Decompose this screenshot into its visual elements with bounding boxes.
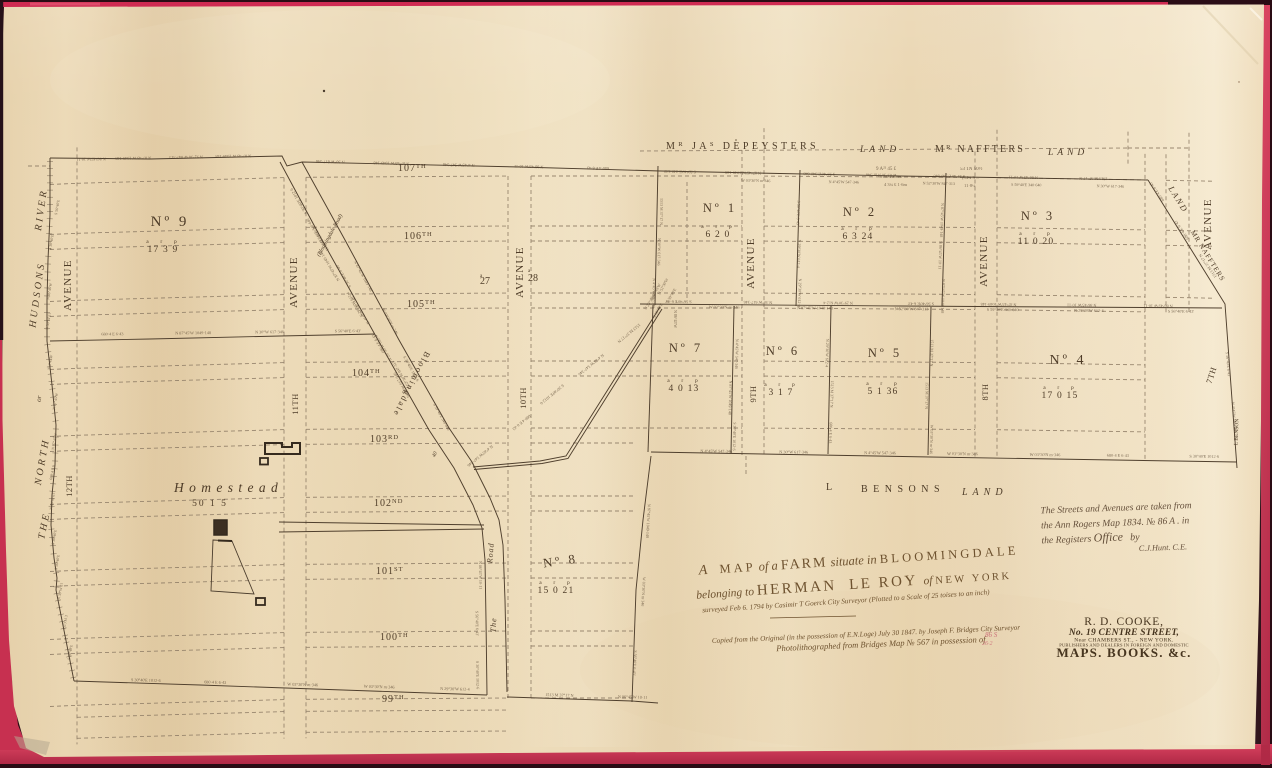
svg-text:S 30°40'E 1012·6: S 30°40'E 1012·6 — [131, 677, 161, 683]
svg-text:Road: Road — [485, 542, 496, 564]
svg-text:9 A²² 45 £: 9 A²² 45 £ — [876, 166, 897, 172]
svg-text:R. D. COOKE,: R. D. COOKE, — [1084, 616, 1164, 628]
svg-text:Nº 6: Nº 6 — [766, 344, 800, 358]
svg-text:N 87°45'W 1049·148: N 87°45'W 1049·148 — [725, 170, 761, 176]
svg-text:N 29°30'W 612·4: N 29°30'W 612·4 — [1074, 308, 1105, 313]
svg-text:LAND: LAND — [1047, 148, 1088, 158]
svg-text:N 30°W 617·346: N 30°W 617·346 — [779, 449, 808, 454]
svg-text:W 03°30'N m·346: W 03°30'N m·346 — [947, 451, 978, 456]
svg-text:(94¼ 3 ...: (94¼ 3 ... — [962, 175, 979, 180]
svg-text:1513 M 37°17 N: 1513 M 37°17 N — [929, 339, 935, 366]
svg-text:6 2 0: 6 2 0 — [706, 230, 731, 240]
svg-text:680·4 E 6·43: 680·4 E 6·43 — [101, 331, 123, 336]
svg-text:MR JAS DEPEYSTERS: MR JAS DEPEYSTERS — [666, 141, 819, 152]
svg-text:W 03°30'N m·346: W 03°30'N m·346 — [287, 682, 318, 688]
svg-text:86 S: 86 S — [985, 631, 998, 639]
svg-text:28: 28 — [528, 273, 538, 284]
svg-text:S 56°40'E 6·43': S 56°40'E 6·43' — [335, 328, 362, 333]
svg-text:L: L — [826, 482, 834, 493]
svg-text:6 3 24: 6 3 24 — [843, 232, 874, 242]
svg-text:BENSONS: BENSONS — [861, 484, 945, 495]
svg-text:26·2: 26·2 — [982, 641, 993, 647]
svg-text:N 4°45'W 547·346: N 4°45'W 547·346 — [829, 179, 859, 184]
svg-text:S 30°40'E 1012·6: S 30°40'E 1012·6 — [475, 661, 480, 689]
svg-text:N 4°45'W 547·346: N 4°45'W 547·346 — [651, 278, 657, 308]
svg-text:N 4°45'W 547·346: N 4°45'W 547·346 — [864, 450, 896, 455]
svg-text:Nº 4: Nº 4 — [1050, 353, 1087, 368]
svg-text:17 0 15: 17 0 15 — [1042, 391, 1079, 401]
svg-text:Nº 2: Nº 2 — [843, 205, 877, 219]
svg-text:Nº 5: Nº 5 — [868, 346, 902, 360]
svg-text:AVENUE: AVENUE — [978, 235, 990, 287]
svg-text:680·4 E 6·43: 680·4 E 6·43 — [828, 422, 834, 443]
svg-text:N 52°30'W 847·313: N 52°30'W 847·313 — [169, 155, 203, 161]
svg-text:17 3 9: 17 3 9 — [148, 245, 179, 255]
svg-text:W 03°30'N m·346: W 03°30'N m·346 — [741, 178, 770, 183]
svg-text:N 86°45'W 10·11: N 86°45'W 10·11 — [76, 157, 106, 163]
svg-text:No. 19 CENTRE STREET,: No. 19 CENTRE STREET, — [1068, 628, 1179, 638]
svg-text:Nº 1: Nº 1 — [703, 201, 737, 215]
svg-text:N 30°W 617·346: N 30°W 617·346 — [1097, 183, 1125, 188]
svg-text:N 87°45'W 1049·148: N 87°45'W 1049·148 — [215, 154, 251, 160]
svg-text:N 86°45'W 10·11: N 86°45'W 10·11 — [514, 164, 544, 170]
svg-text:S 59°40'E 340·640: S 59°40'E 340·640 — [933, 174, 965, 180]
svg-text:4 3¼ £ 1·6m: 4 3¼ £ 1·6m — [884, 182, 907, 187]
svg-text:680·4 E 6·43: 680·4 E 6·43 — [587, 166, 609, 172]
svg-text:S 56°40'E 6·43': S 56°40'E 6·43' — [1168, 309, 1195, 314]
svg-text:N 86°45'W 10·11: N 86°45'W 10·11 — [1009, 175, 1039, 181]
svg-text:S 59°40'E 340·640: S 59°40'E 340·640 — [803, 171, 835, 177]
svg-text:S 56°40'E 6·43': S 56°40'E 6·43' — [796, 200, 802, 225]
svg-text:S 56°40'E 6·43': S 56°40'E 6·43' — [475, 611, 480, 636]
svg-text:N 4°45'W 547·346: N 4°45'W 547·346 — [700, 448, 732, 453]
svg-text:LAND: LAND — [859, 145, 900, 155]
svg-text:4 0 13: 4 0 13 — [669, 384, 700, 394]
svg-text:680·4 E 6·43: 680·4 E 6·43 — [1107, 453, 1129, 458]
svg-text:15 0 21: 15 0 21 — [538, 586, 575, 596]
svg-text:1513 M 37°17 N: 1513 M 37°17 N — [829, 380, 835, 407]
svg-text:11·8¼: 11·8¼ — [964, 183, 976, 188]
svg-text:8TH: 8TH — [980, 383, 990, 400]
svg-text:N 29°30'W 612·4: N 29°30'W 612·4 — [797, 278, 803, 306]
svg-text:9TH: 9TH — [748, 385, 758, 402]
svg-text:N 30°W 617·346: N 30°W 617·346 — [744, 300, 773, 305]
svg-text:N 29°30'W 612·4: N 29°30'W 612·4 — [796, 239, 802, 267]
svg-text:3 1 7: 3 1 7 — [769, 388, 794, 398]
svg-text:LAND: LAND — [961, 487, 1008, 498]
svg-text:W 03°30'N m·346: W 03°30'N m·346 — [364, 684, 395, 690]
svg-text:50 1 5: 50 1 5 — [192, 499, 228, 509]
svg-text:N 86°45'W 10·11: N 86°45'W 10·11 — [478, 561, 483, 589]
svg-text:S 59°40'E 340·640: S 59°40'E 340·640 — [664, 169, 696, 175]
svg-text:AVENUE: AVENUE — [745, 237, 757, 289]
svg-text:1513 M 37°17 N: 1513 M 37°17 N — [545, 692, 573, 698]
svg-text:Nº 7: Nº 7 — [669, 341, 703, 355]
svg-text:1513 M 37°17 N: 1513 M 37°17 N — [1079, 176, 1107, 181]
svg-text:S 30°40'E 1012·6: S 30°40'E 1012·6 — [1189, 454, 1219, 459]
svg-text:MAPS. BOOKS. &c.: MAPS. BOOKS. &c. — [1056, 645, 1191, 660]
svg-text:N 87°45'W 1049·148: N 87°45'W 1049·148 — [728, 380, 734, 414]
svg-text:N 52°30'W 847·313: N 52°30'W 847·313 — [895, 306, 929, 311]
svg-text:W 03°30'N m·346: W 03°30'N m·346 — [929, 425, 935, 454]
svg-text:Nº 9: Nº 9 — [151, 214, 190, 230]
svg-text:AVENUE: AVENUE — [288, 256, 300, 308]
svg-text:N 52°30'W 847·313: N 52°30'W 847·313 — [923, 181, 955, 187]
svg-text:N 87°45'W 1049·148: N 87°45'W 1049·148 — [115, 156, 151, 162]
svg-text:11TH: 11TH — [290, 393, 300, 415]
svg-text:5 1 36: 5 1 36 — [868, 387, 899, 397]
svg-text:S 59°40'E 340·640: S 59°40'E 340·640 — [1011, 182, 1041, 187]
svg-text:N 86°45'W 10·11: N 86°45'W 10·11 — [618, 694, 648, 700]
svg-text:H o m e s t e a d: H o m e s t e a d — [173, 480, 279, 495]
svg-text:The: The — [489, 617, 499, 632]
svg-text:N 86°45'W 10·11: N 86°45'W 10·11 — [938, 241, 944, 269]
svg-text:N 4°45'W 547·346: N 4°45'W 547·346 — [443, 162, 475, 168]
svg-text:1513 M 37°17 N: 1513 M 37°17 N — [924, 382, 930, 409]
svg-text:N 87°45'W 1049·148: N 87°45'W 1049·148 — [175, 330, 211, 335]
svg-text:8 36¾ acres: 8 36¾ acres — [880, 174, 902, 179]
svg-text:N 29°30'W 612·4: N 29°30'W 612·4 — [440, 686, 471, 692]
svg-text:11 0 20: 11 0 20 — [1018, 237, 1055, 247]
svg-text:N 30°W 617·346: N 30°W 617·346 — [316, 159, 345, 165]
svg-text:S 59°40'E 340·640: S 59°40'E 340·640 — [987, 307, 1019, 312]
svg-text:S 30°40'E 1012·6: S 30°40'E 1012·6 — [732, 422, 738, 450]
svg-text:W 03°30'N m·346: W 03°30'N m·346 — [709, 304, 740, 309]
svg-text:Nº 3: Nº 3 — [1021, 209, 1055, 223]
svg-text:W 03°30'N m·346: W 03°30'N m·346 — [1030, 452, 1061, 457]
svg-text:AVENUE: AVENUE — [62, 259, 74, 311]
svg-text:C.J.Hunt. C.E.: C.J.Hunt. C.E. — [1139, 542, 1188, 553]
svg-text:10TH: 10TH — [518, 387, 528, 409]
svg-text:12TH: 12TH — [64, 475, 74, 497]
svg-text:N 29°30'W 612·4: N 29°30'W 612·4 — [825, 339, 831, 367]
svg-text:AVENUE: AVENUE — [514, 246, 526, 298]
svg-text:53 1N 50½: 53 1N 50½ — [960, 167, 983, 172]
svg-text:1513 M 37°17 N: 1513 M 37°17 N — [659, 198, 664, 225]
svg-text:N 86°45'W: N 86°45'W — [673, 310, 678, 328]
svg-text:680·4 E 6·43: 680·4 E 6·43 — [204, 679, 226, 685]
svg-text:L BENSON: L BENSON — [1234, 419, 1241, 446]
svg-text:N 30°W 617·346: N 30°W 617·346 — [255, 329, 284, 334]
svg-text:N 30°W 617·346: N 30°W 617·346 — [657, 238, 662, 266]
svg-text:N 4°45'W 547·346: N 4°45'W 547·346 — [734, 339, 740, 369]
